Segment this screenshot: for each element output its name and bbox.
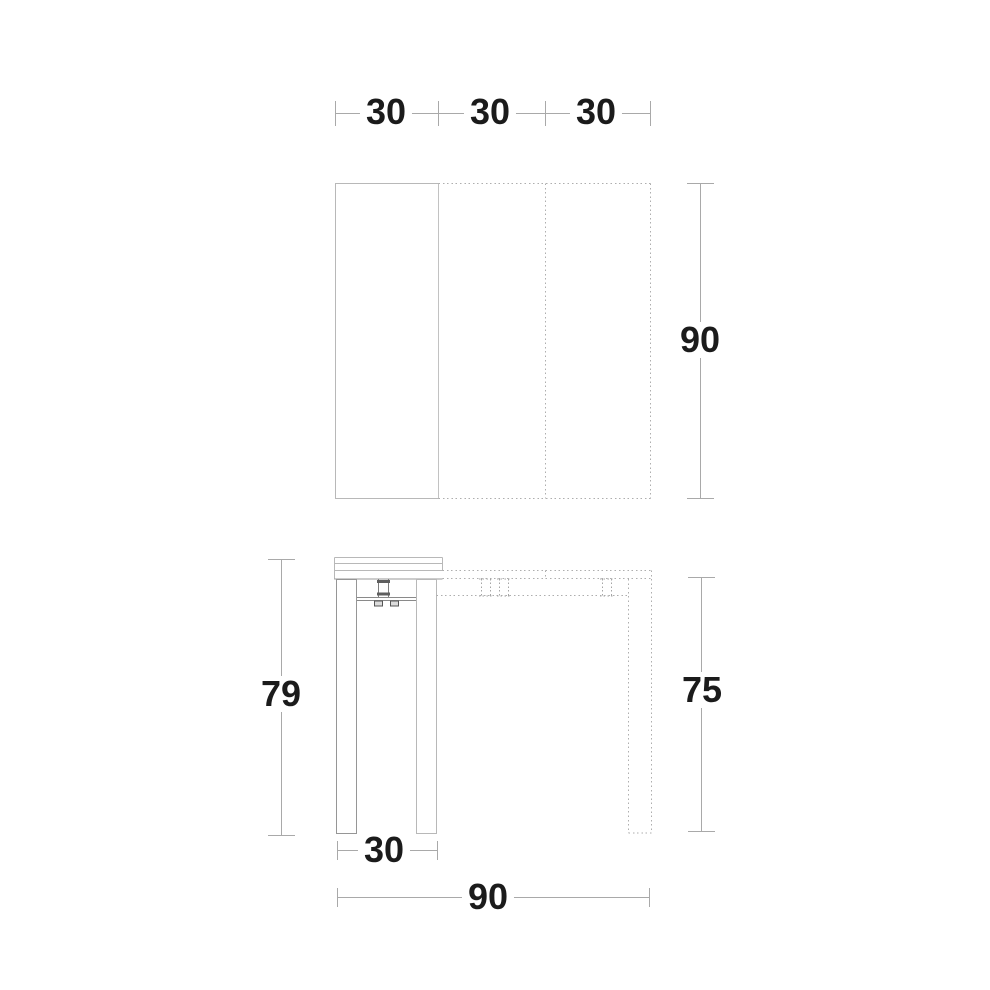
dim-label-plan-depth: 90 (674, 322, 726, 358)
dim-label-extended-width: 90 (462, 879, 514, 915)
dim-label-table-height: 75 (676, 672, 728, 708)
dim-label-closed-width: 30 (358, 832, 410, 868)
dim-label-overall-height: 79 (255, 676, 307, 712)
slide-mechanism (357, 579, 416, 606)
dim-label-plan-segment-2: 30 (464, 94, 516, 130)
plan-view (336, 184, 651, 499)
folded-leaves-stack (335, 558, 443, 580)
front-leg (337, 580, 357, 834)
slide-brackets-dotted (479, 579, 614, 596)
technical-drawing: 30 30 30 90 79 75 30 90 (0, 0, 990, 990)
rear-leg (417, 580, 437, 834)
extended-top-dotted (443, 571, 652, 579)
extended-leg-dotted (629, 571, 652, 834)
drawing-canvas (0, 0, 990, 990)
dim-label-plan-segment-1: 30 (360, 94, 412, 130)
dim-label-plan-segment-3: 30 (570, 94, 622, 130)
elevation-view (335, 558, 652, 834)
